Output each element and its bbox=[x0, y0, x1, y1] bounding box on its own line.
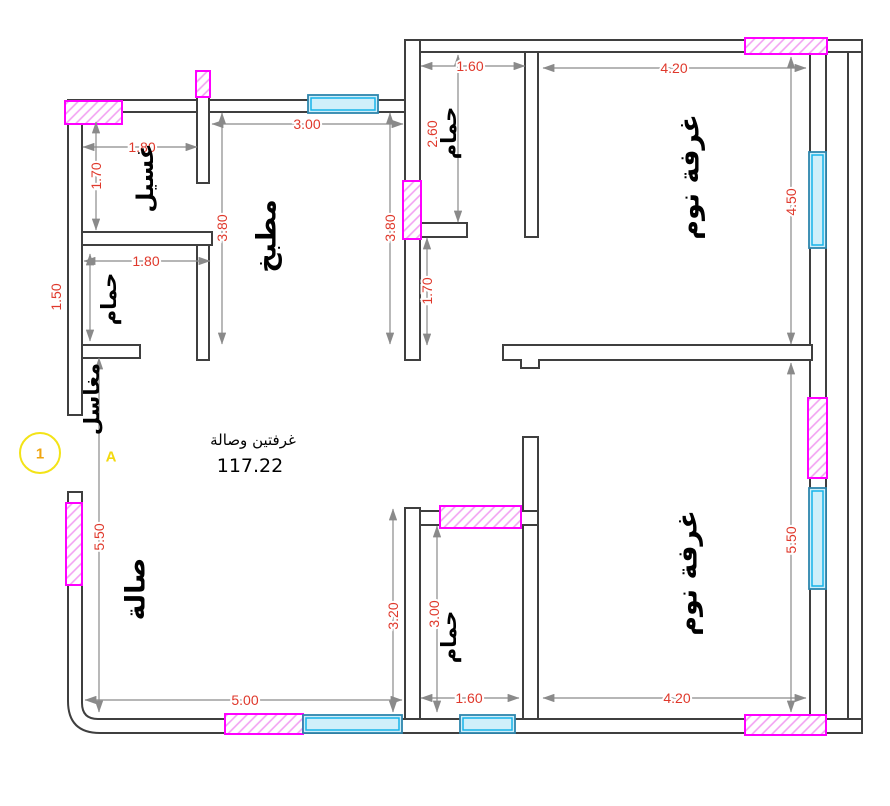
dim-label: 3.20 bbox=[385, 602, 401, 629]
wall-segment bbox=[848, 52, 862, 719]
room-label-hall: صالة bbox=[121, 558, 152, 621]
room-label-bath-bottom: حمام bbox=[437, 611, 461, 664]
dim-label: 5.50 bbox=[91, 523, 107, 550]
section-marker-letter: A bbox=[106, 449, 117, 466]
room-label-bath-top-left: حمام bbox=[97, 273, 121, 326]
room-label-bath-top: حمام bbox=[437, 107, 461, 160]
dim-label: 5.00 bbox=[231, 692, 258, 708]
room-label-sinks: مغاسل bbox=[80, 363, 104, 435]
room-label-laundry: غسيل bbox=[133, 143, 159, 212]
dim-label: 3.80 bbox=[214, 214, 230, 241]
wall-segment bbox=[503, 345, 812, 368]
wall-segment bbox=[82, 345, 140, 358]
dim-label: 1.70 bbox=[419, 277, 435, 304]
door-hatch-symbol bbox=[403, 181, 421, 239]
room-label-bedroom-bottom: غرفة نوم bbox=[673, 510, 704, 636]
dim-label: 4.50 bbox=[783, 188, 799, 215]
room-label-bedroom-top: غرفة نوم bbox=[675, 114, 706, 240]
plan-area: 117.22 bbox=[217, 455, 283, 477]
room-label-kitchen: مطبخ bbox=[252, 199, 283, 273]
wall-segment bbox=[420, 223, 467, 237]
dim-label: 1.60 bbox=[456, 58, 483, 74]
dim-label: 5.50 bbox=[783, 526, 799, 553]
dim-label: 4.20 bbox=[663, 690, 690, 706]
wall-segment bbox=[82, 232, 212, 245]
door-hatch-symbol bbox=[440, 506, 521, 528]
floor-plan: 1.80 1.70 3.00 3.80 3.80 1.60 2.60 1.70 … bbox=[0, 0, 890, 806]
dim-label: 4.20 bbox=[660, 60, 687, 76]
wall-segment bbox=[405, 508, 420, 719]
wall-segment bbox=[197, 95, 209, 183]
door-hatch-symbol bbox=[196, 71, 210, 97]
wall-segment bbox=[523, 437, 538, 719]
dim-label: 1.70 bbox=[88, 162, 104, 189]
dim-label: 1.50 bbox=[48, 283, 64, 310]
section-marker-number: 1 bbox=[36, 446, 44, 463]
door-hatch-symbol bbox=[745, 715, 826, 735]
wall-segment bbox=[197, 245, 209, 360]
dim-label: 3.00 bbox=[293, 116, 320, 132]
dim-label: 3.80 bbox=[382, 214, 398, 241]
plan-title: غرفتين وصالة bbox=[210, 431, 296, 449]
dim-label: 1.80 bbox=[132, 253, 159, 269]
door-hatch-symbol bbox=[225, 714, 303, 734]
dim-label: 1.60 bbox=[455, 690, 482, 706]
door-hatch-symbol bbox=[66, 503, 82, 585]
door-hatch-symbol bbox=[745, 38, 827, 54]
door-hatch-symbol bbox=[65, 101, 122, 124]
door-hatch-symbol bbox=[808, 398, 827, 478]
wall-segment bbox=[525, 52, 538, 237]
